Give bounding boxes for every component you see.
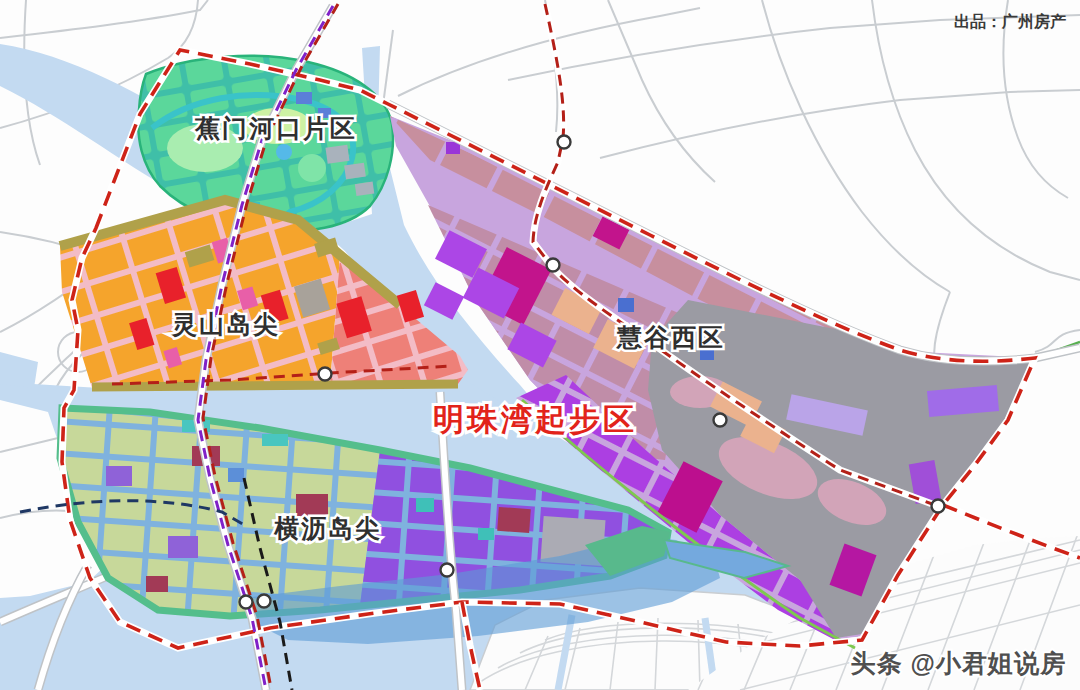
jiaomen-blue-parcel bbox=[296, 92, 312, 104]
jiaomen-parcel-round bbox=[298, 154, 326, 182]
station-marker bbox=[558, 136, 571, 149]
station-marker bbox=[258, 595, 271, 608]
credit-text: 出品：广州房产 bbox=[954, 12, 1066, 30]
jiaomen-pond bbox=[276, 144, 292, 160]
label-lingshan: 灵山岛尖 bbox=[171, 310, 280, 338]
map-canvas: 蕉门河口片区 灵山岛尖 慧谷西区 横沥岛尖 明珠湾起步区 出品：广州房产 头条 … bbox=[0, 0, 1080, 690]
station-marker bbox=[319, 368, 332, 381]
planning-map: 蕉门河口片区 灵山岛尖 慧谷西区 横沥岛尖 明珠湾起步区 出品：广州房产 头条 … bbox=[0, 0, 1080, 690]
label-center-area: 明珠湾起步区 bbox=[433, 402, 637, 437]
lingshan-olive-band-south bbox=[92, 384, 458, 387]
label-huigu: 慧谷西区 bbox=[616, 323, 725, 351]
station-marker bbox=[547, 259, 560, 272]
station-marker bbox=[932, 500, 945, 513]
label-hengli: 横沥岛尖 bbox=[273, 514, 382, 542]
watermark-text: 头条 @小君姐说房 bbox=[851, 649, 1066, 677]
label-jiaomen: 蕉门河口片区 bbox=[194, 114, 357, 142]
huigu-blue-parcel bbox=[618, 298, 634, 312]
hengli-blue-parcel bbox=[228, 468, 244, 482]
station-marker bbox=[240, 596, 253, 609]
station-marker bbox=[714, 414, 727, 427]
station-marker bbox=[441, 564, 454, 577]
